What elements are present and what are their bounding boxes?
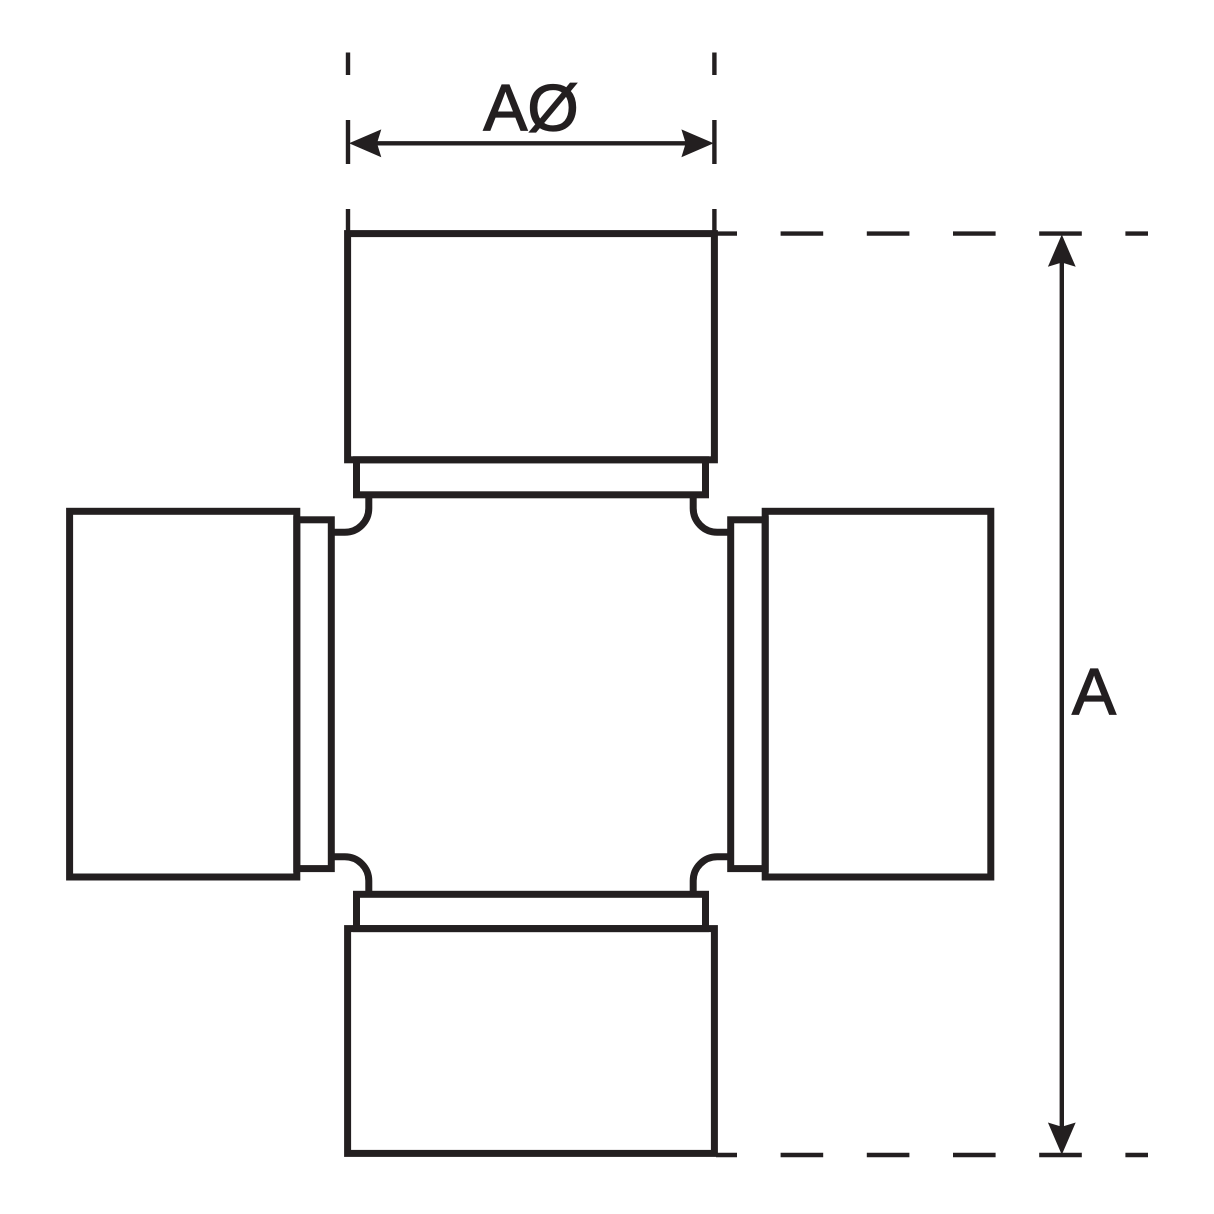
svg-text:A: A xyxy=(1072,655,1116,729)
svg-text:AØ: AØ xyxy=(483,71,578,145)
